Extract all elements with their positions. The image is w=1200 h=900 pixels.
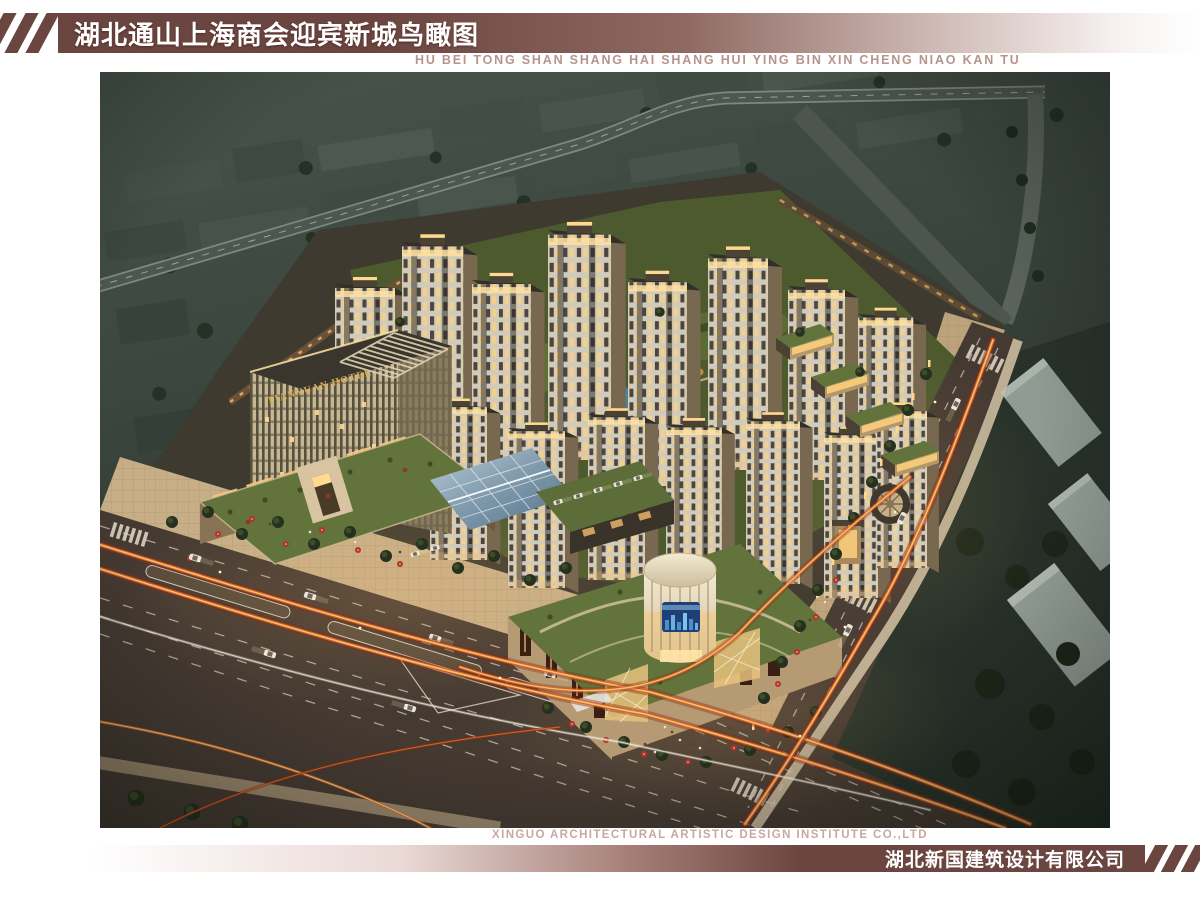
decor-stripes-bottom-right xyxy=(1142,845,1200,872)
design-institute-cn: 湖北新国建筑设计有限公司 xyxy=(885,845,1125,872)
page-title: 湖北通山上海商会迎宾新城鸟瞰图 xyxy=(58,15,479,52)
page-title-pinyin: HU BEI TONG SHAN SHANG HAI SHANG HUI YIN… xyxy=(415,53,945,67)
master-plan-rendering: TIANYUAN HOTEL xyxy=(100,72,1110,828)
title-bar: 湖北通山上海商会迎宾新城鸟瞰图 xyxy=(58,13,1200,53)
footer-bar: 湖北新国建筑设计有限公司 xyxy=(0,845,1145,872)
title-band: 湖北通山上海商会迎宾新城鸟瞰图 xyxy=(0,13,1200,53)
footer-band: 湖北新国建筑设计有限公司 xyxy=(0,845,1200,872)
aerial-rendering: TIANYUAN HOTEL xyxy=(100,72,1110,828)
design-institute-en: XINGUO ARCHITECTURAL ARTISTIC DESIGN INS… xyxy=(430,829,990,841)
presentation-board: 湖北通山上海商会迎宾新城鸟瞰图 HU BEI TONG SHAN SHANG H… xyxy=(0,0,1200,900)
vignette-overlay xyxy=(100,72,1110,828)
decor-stripes-top-left xyxy=(0,13,60,53)
